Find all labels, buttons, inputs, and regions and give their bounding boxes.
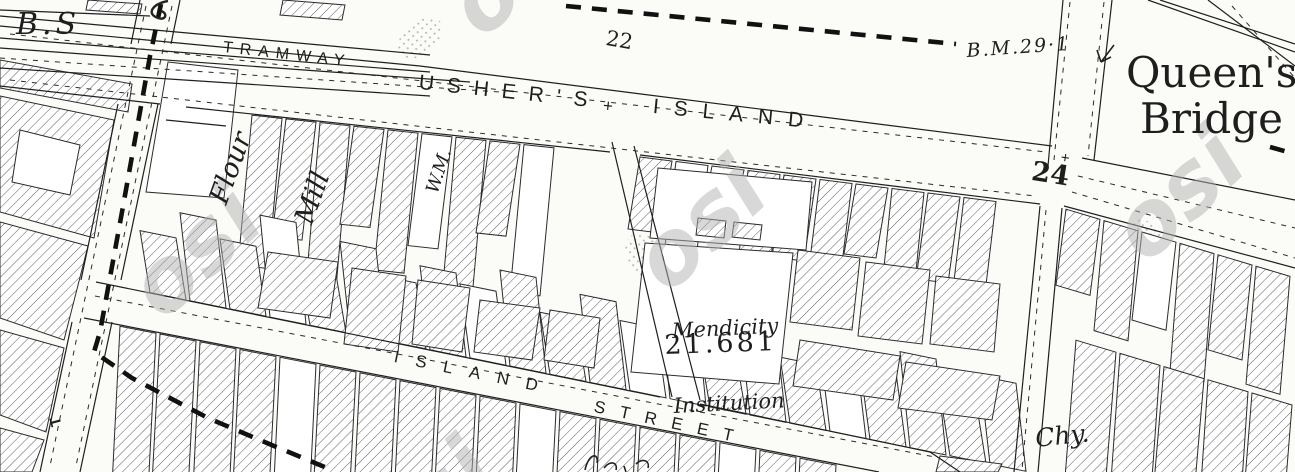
- boundary-cross-icon: +: [602, 97, 614, 115]
- chimney-label: Chy.: [1034, 420, 1090, 451]
- plot-number-24: 24: [1030, 158, 1071, 191]
- queens-bridge-label-line2: Bridge: [1140, 98, 1283, 140]
- mendicity-area-value: 21.681: [664, 328, 777, 359]
- plot-number-22: 22: [604, 28, 634, 53]
- map-viewport[interactable]: osi osi osi osi osi B.S TRAMWAY 22 USHER…: [0, 0, 1295, 472]
- queens-bridge-label-line1: Queen's: [1126, 52, 1295, 94]
- boundary-stone-label: B.S: [16, 10, 80, 40]
